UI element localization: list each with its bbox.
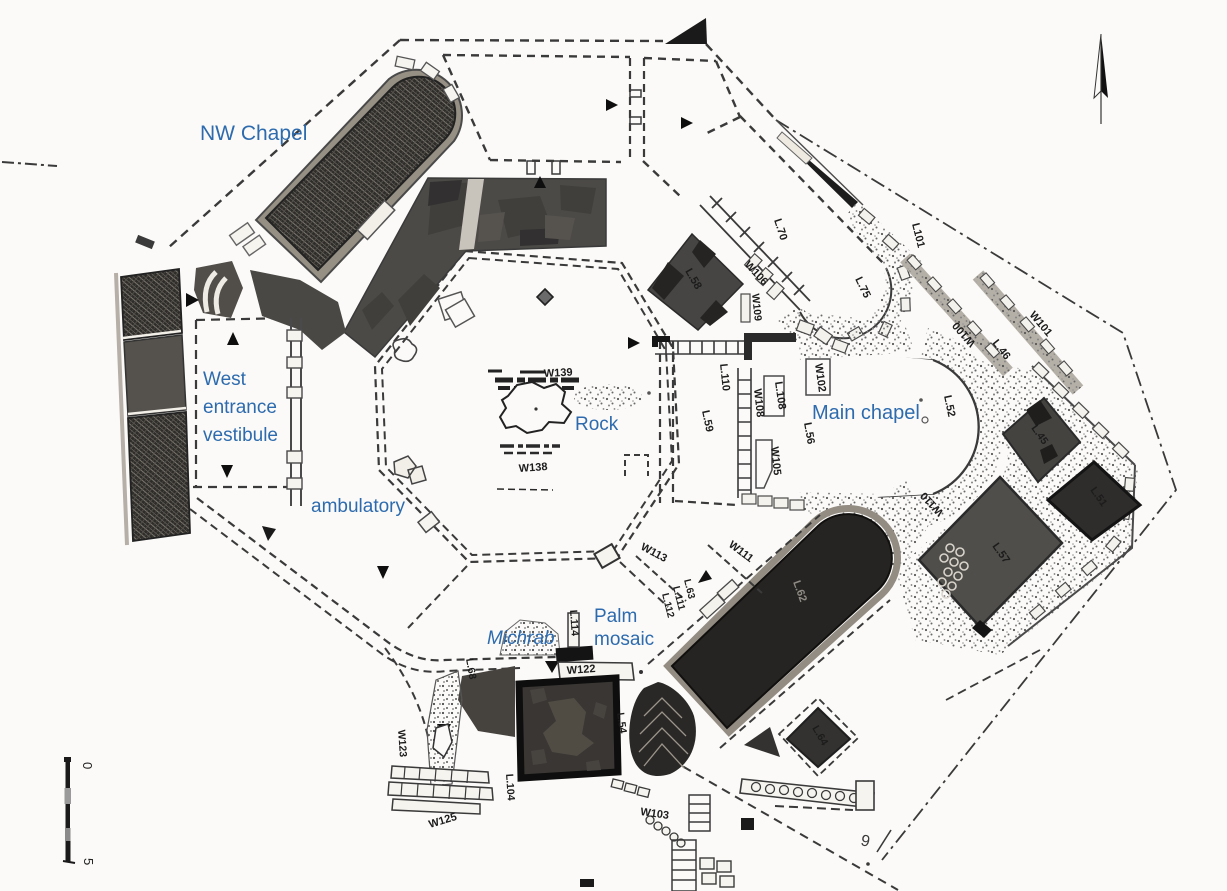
svg-text:L.114: L.114: [567, 609, 581, 636]
svg-text:0: 0: [80, 762, 95, 769]
svg-text:Michrab: Michrab: [487, 628, 555, 649]
svg-text:ambulatory: ambulatory: [311, 496, 405, 517]
svg-text:vestibule: vestibule: [203, 425, 278, 446]
svg-text:Rock: Rock: [575, 414, 619, 435]
svg-text:W139: W139: [544, 367, 573, 380]
svg-text:W123: W123: [395, 729, 409, 757]
svg-text:NW Chapel: NW Chapel: [200, 122, 307, 145]
svg-text:5: 5: [81, 858, 96, 865]
svg-text:Palm: Palm: [594, 606, 637, 627]
svg-text:L.104: L.104: [503, 773, 517, 801]
svg-text:Main chapel: Main chapel: [812, 402, 920, 424]
svg-text:W122: W122: [566, 663, 596, 677]
svg-text:W138: W138: [518, 461, 548, 475]
svg-text:mosaic: mosaic: [594, 629, 654, 650]
svg-text:entrance: entrance: [203, 397, 277, 418]
svg-text:West: West: [203, 369, 247, 390]
